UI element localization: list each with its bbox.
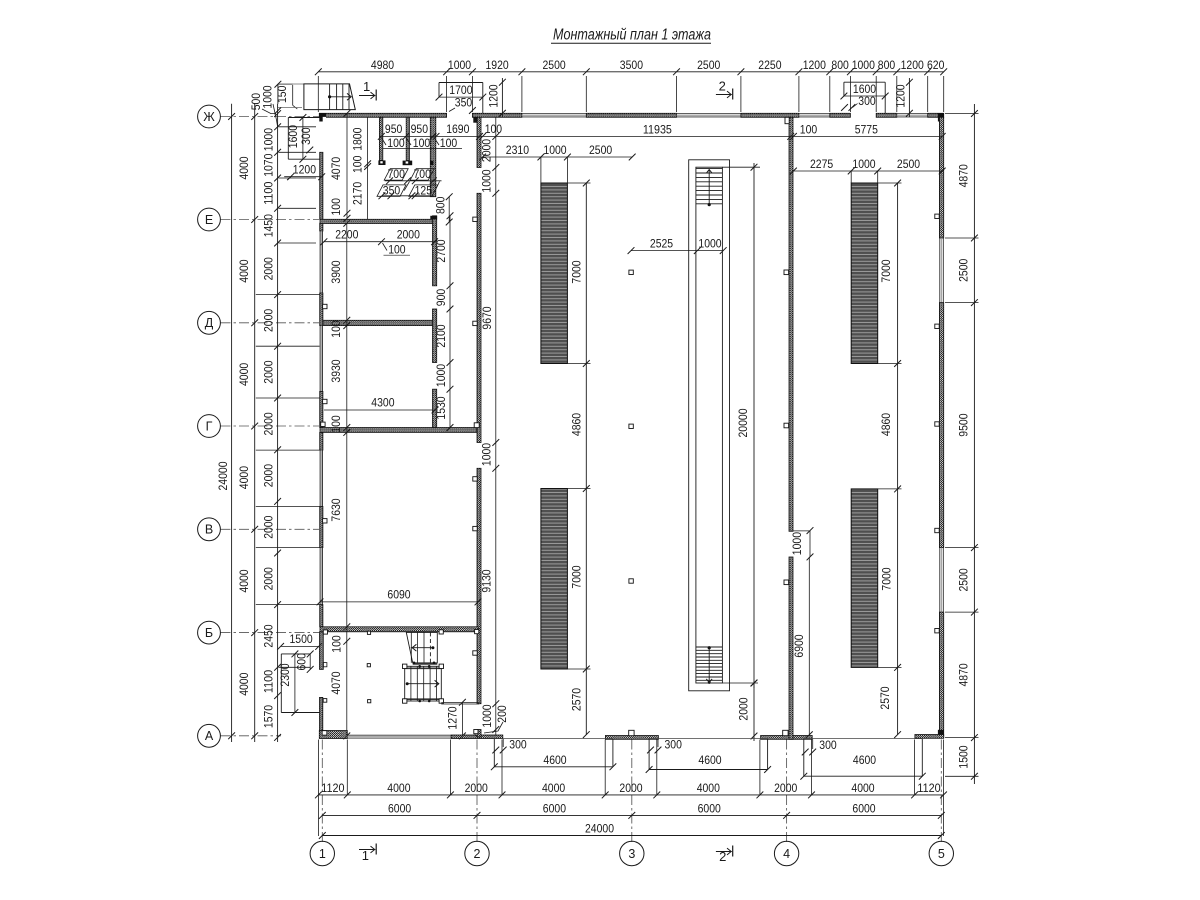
svg-text:3930: 3930 [329, 359, 343, 383]
svg-text:Монтажный план 1 этажа: Монтажный план 1 этажа [553, 27, 711, 44]
svg-text:1: 1 [362, 848, 369, 863]
svg-text:1000: 1000 [261, 128, 275, 152]
svg-text:1270: 1270 [446, 706, 460, 730]
svg-text:2250: 2250 [758, 58, 782, 72]
svg-text:1000: 1000 [543, 143, 567, 157]
svg-text:2170: 2170 [350, 181, 364, 205]
svg-text:1690: 1690 [446, 122, 470, 136]
svg-text:800: 800 [878, 58, 896, 72]
svg-text:5: 5 [938, 847, 945, 861]
svg-text:24000: 24000 [585, 822, 614, 836]
svg-text:9670: 9670 [480, 306, 494, 330]
svg-text:7000: 7000 [569, 565, 583, 589]
svg-text:4000: 4000 [387, 781, 411, 795]
svg-text:7630: 7630 [329, 498, 343, 522]
svg-text:2000: 2000 [480, 139, 494, 163]
svg-text:2275: 2275 [810, 157, 834, 171]
svg-text:620: 620 [927, 58, 945, 72]
svg-text:700: 700 [414, 167, 432, 181]
svg-text:1000: 1000 [852, 157, 876, 171]
svg-text:1530: 1530 [434, 396, 448, 420]
svg-text:4600: 4600 [698, 753, 722, 767]
svg-text:20000: 20000 [736, 408, 750, 437]
svg-text:Е: Е [205, 213, 213, 227]
svg-text:9500: 9500 [957, 413, 971, 437]
svg-text:100: 100 [485, 122, 503, 136]
svg-text:100: 100 [387, 136, 405, 150]
svg-text:1500: 1500 [957, 745, 971, 769]
svg-text:7000: 7000 [569, 260, 583, 284]
svg-text:4870: 4870 [957, 663, 971, 687]
svg-text:1920: 1920 [486, 58, 510, 72]
svg-text:4860: 4860 [569, 413, 583, 437]
svg-text:300: 300 [299, 127, 313, 145]
svg-text:1000: 1000 [480, 704, 494, 728]
svg-text:2000: 2000 [465, 781, 489, 795]
svg-text:2000: 2000 [619, 781, 643, 795]
svg-text:100: 100 [329, 198, 343, 216]
svg-text:125: 125 [415, 183, 433, 197]
svg-text:Г: Г [206, 419, 213, 433]
svg-text:4: 4 [783, 847, 790, 861]
svg-text:2700: 2700 [434, 239, 448, 263]
svg-text:4000: 4000 [237, 362, 251, 386]
svg-text:600: 600 [294, 653, 308, 671]
svg-text:300: 300 [509, 737, 527, 751]
svg-text:100: 100 [388, 243, 406, 257]
svg-text:1500: 1500 [290, 632, 314, 646]
svg-text:4000: 4000 [237, 259, 251, 283]
svg-text:2: 2 [719, 79, 726, 94]
svg-text:1070: 1070 [261, 153, 275, 177]
svg-text:300: 300 [858, 94, 876, 108]
svg-text:2500: 2500 [897, 157, 921, 171]
svg-text:100: 100 [330, 635, 344, 653]
svg-text:1000: 1000 [434, 364, 448, 388]
svg-text:2100: 2100 [434, 324, 448, 348]
svg-text:2570: 2570 [569, 688, 583, 712]
svg-text:2000: 2000 [261, 464, 275, 488]
svg-text:2000: 2000 [774, 781, 798, 795]
svg-text:1120: 1120 [321, 781, 345, 795]
svg-text:800: 800 [434, 196, 448, 214]
svg-text:100: 100 [350, 155, 364, 173]
svg-text:350: 350 [455, 96, 473, 110]
svg-text:В: В [205, 523, 213, 537]
svg-text:4070: 4070 [329, 156, 343, 180]
svg-text:1200: 1200 [803, 58, 827, 72]
svg-text:2500: 2500 [957, 568, 971, 592]
svg-text:1100: 1100 [261, 181, 275, 205]
svg-text:1000: 1000 [480, 169, 494, 193]
svg-text:100: 100 [329, 415, 343, 433]
svg-text:1570: 1570 [261, 705, 275, 729]
svg-text:4000: 4000 [542, 781, 566, 795]
svg-text:300: 300 [665, 737, 683, 751]
svg-text:2525: 2525 [650, 236, 674, 250]
svg-text:7000: 7000 [879, 259, 893, 283]
svg-text:100: 100 [329, 320, 343, 338]
svg-text:1000: 1000 [698, 236, 722, 250]
svg-text:Ж: Ж [203, 110, 215, 124]
svg-text:2300: 2300 [278, 663, 292, 687]
svg-text:2500: 2500 [697, 58, 721, 72]
svg-text:4000: 4000 [237, 466, 251, 490]
svg-text:2000: 2000 [737, 697, 751, 721]
svg-text:4870: 4870 [957, 164, 971, 188]
svg-text:4000: 4000 [697, 781, 721, 795]
svg-text:11935: 11935 [643, 122, 672, 136]
svg-text:1200: 1200 [487, 84, 501, 108]
svg-text:1200: 1200 [894, 84, 908, 108]
svg-text:200: 200 [495, 705, 509, 723]
svg-text:4000: 4000 [237, 569, 251, 593]
svg-text:4000: 4000 [851, 781, 875, 795]
svg-text:2500: 2500 [957, 258, 971, 282]
svg-text:5775: 5775 [855, 122, 879, 136]
svg-text:2000: 2000 [261, 308, 275, 332]
svg-text:900: 900 [434, 288, 448, 306]
svg-text:4860: 4860 [879, 413, 893, 437]
svg-text:24000: 24000 [216, 461, 230, 490]
svg-text:6090: 6090 [387, 588, 411, 602]
svg-text:1200: 1200 [901, 58, 925, 72]
svg-text:2000: 2000 [261, 257, 275, 281]
svg-text:100: 100 [800, 122, 818, 136]
svg-text:А: А [205, 729, 214, 743]
svg-text:1: 1 [363, 79, 370, 94]
svg-text:Б: Б [205, 626, 213, 640]
svg-text:1000: 1000 [448, 58, 472, 72]
svg-text:3: 3 [628, 847, 635, 861]
svg-text:4000: 4000 [237, 156, 251, 180]
svg-text:1000: 1000 [480, 443, 494, 467]
svg-text:2: 2 [719, 849, 726, 864]
svg-text:4300: 4300 [371, 396, 395, 410]
svg-text:6000: 6000 [388, 802, 412, 816]
svg-text:4000: 4000 [237, 672, 251, 696]
svg-text:2500: 2500 [543, 58, 567, 72]
svg-text:800: 800 [831, 58, 849, 72]
svg-text:6900: 6900 [792, 634, 806, 658]
svg-text:300: 300 [819, 738, 837, 752]
svg-text:4600: 4600 [543, 753, 567, 767]
svg-text:2310: 2310 [506, 143, 530, 157]
svg-text:1: 1 [319, 847, 326, 861]
svg-text:7000: 7000 [880, 567, 894, 591]
svg-text:1450: 1450 [261, 214, 275, 238]
svg-text:1120: 1120 [917, 781, 941, 795]
svg-text:2000: 2000 [261, 412, 275, 436]
svg-text:1200: 1200 [293, 162, 317, 176]
svg-text:700: 700 [388, 167, 406, 181]
svg-text:6000: 6000 [698, 802, 722, 816]
svg-text:2450: 2450 [261, 624, 275, 648]
svg-text:6000: 6000 [543, 802, 567, 816]
svg-text:2000: 2000 [397, 228, 421, 242]
svg-text:3500: 3500 [620, 58, 644, 72]
svg-text:6000: 6000 [852, 802, 876, 816]
svg-text:9130: 9130 [480, 569, 494, 593]
svg-text:2500: 2500 [589, 143, 613, 157]
svg-text:Д: Д [205, 316, 214, 330]
svg-text:4070: 4070 [329, 671, 343, 695]
svg-text:100: 100 [440, 136, 458, 150]
svg-text:100: 100 [413, 136, 431, 150]
svg-text:1800: 1800 [350, 127, 364, 151]
svg-text:2570: 2570 [878, 686, 892, 710]
svg-text:1000: 1000 [260, 85, 274, 109]
svg-text:150: 150 [275, 85, 289, 103]
svg-text:1000: 1000 [790, 532, 804, 556]
svg-text:2000: 2000 [261, 515, 275, 539]
svg-text:950: 950 [411, 122, 429, 136]
svg-text:4980: 4980 [371, 58, 395, 72]
svg-text:1100: 1100 [261, 670, 275, 694]
svg-text:950: 950 [385, 122, 403, 136]
svg-text:3900: 3900 [329, 260, 343, 284]
svg-text:2000: 2000 [261, 360, 275, 384]
svg-text:4600: 4600 [853, 753, 877, 767]
svg-text:2000: 2000 [261, 567, 275, 591]
svg-text:2: 2 [474, 847, 481, 861]
svg-text:1000: 1000 [852, 58, 876, 72]
